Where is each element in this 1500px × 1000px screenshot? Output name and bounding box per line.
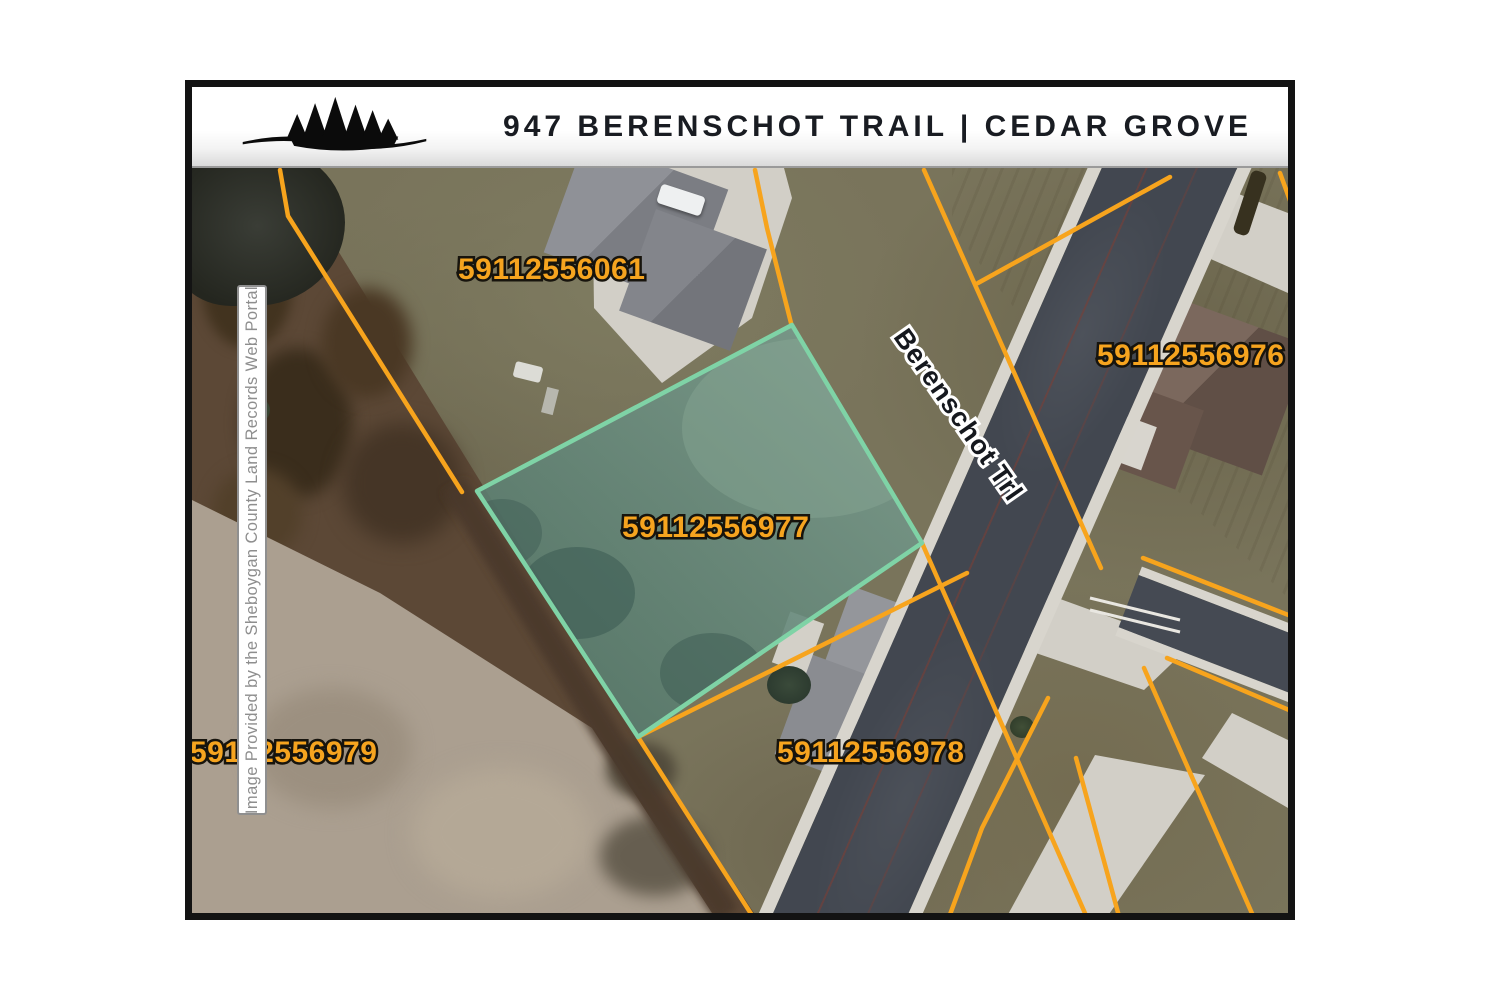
bare-tree xyxy=(606,742,676,798)
header-bar: 947 BERENSCHOT TRAIL | CEDAR GROVE xyxy=(192,87,1288,168)
page: 947 BERENSCHOT TRAIL | CEDAR GROVE xyxy=(0,0,1500,1000)
pine-trees-logo-icon xyxy=(222,93,447,163)
page-title: 947 BERENSCHOT TRAIL | CEDAR GROVE xyxy=(482,87,1273,166)
scrub-blob xyxy=(342,423,462,543)
dirt-patch xyxy=(252,688,412,808)
map-frame: 947 BERENSCHOT TRAIL | CEDAR GROVE xyxy=(185,80,1295,920)
aerial-map: 59112556061 59112556976 59112556977 5911… xyxy=(192,168,1288,913)
attribution-bar: Image Provided by the Sheboygan County L… xyxy=(237,285,267,815)
dirt-patch xyxy=(412,768,592,898)
bare-tree xyxy=(600,816,710,896)
bush xyxy=(767,666,811,704)
attribution-text: Image Provided by the Sheboygan County L… xyxy=(243,286,262,814)
scrub-blob xyxy=(322,288,412,398)
bush xyxy=(1010,716,1034,738)
